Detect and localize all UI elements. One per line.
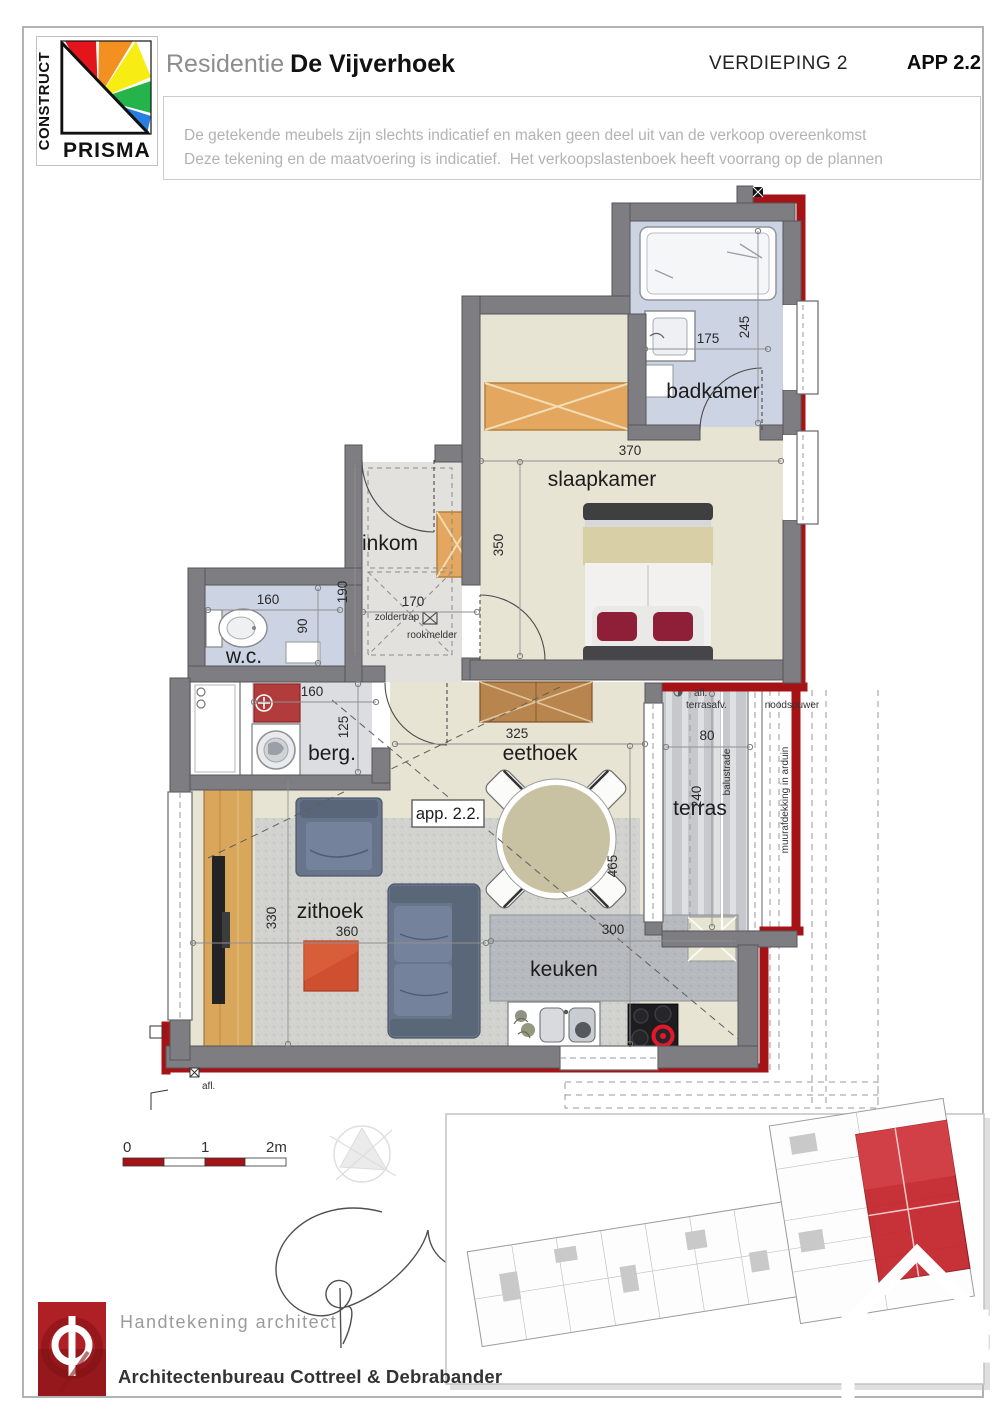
- dim-living-d: 465: [605, 855, 620, 878]
- note-afl-bottom: afl.: [202, 1081, 215, 1092]
- dim-wc-w: 160: [257, 592, 280, 607]
- dim-inkom-w: 170: [402, 594, 425, 609]
- label-wc: w.c.: [225, 645, 262, 668]
- cooktop: [628, 1004, 678, 1050]
- dim-zithoek-w: 360: [336, 924, 359, 939]
- dim-terras-w: 80: [699, 728, 714, 743]
- signature-caption: Handtekening architect: [120, 1312, 337, 1333]
- label-eethoek: eethoek: [503, 742, 578, 765]
- column-marker-icon: [753, 187, 763, 197]
- dim-inkom-d: 190: [335, 581, 350, 604]
- scale-0: 0: [123, 1139, 131, 1156]
- window-badkamer: [783, 301, 818, 394]
- note-terrasafv: terrasafv.: [686, 700, 727, 711]
- label-inkom: inkom: [362, 532, 418, 555]
- wc-shelf: [286, 642, 320, 663]
- window-bottom: [560, 1046, 658, 1070]
- dim-eethoek-w: 325: [506, 726, 529, 741]
- label-slaapkamer: slaapkamer: [548, 468, 657, 491]
- sofa: [388, 884, 480, 1038]
- dim-berg-w: 160: [301, 684, 324, 699]
- dim-slaapkamer-d: 350: [491, 534, 506, 557]
- dim-wc-d: 90: [295, 618, 310, 633]
- note-noodspuwer: noodspuwer: [765, 700, 820, 711]
- dim-badkamer-d: 245: [737, 316, 752, 339]
- floor-plan-svg: badkamer slaapkamer inkom w.c. berg. eet…: [0, 0, 1007, 1425]
- scale-bar: 0 1 2m: [123, 1139, 287, 1166]
- scale-1: 1: [201, 1139, 209, 1156]
- firm-name: Architectenbureau Cottreel & Debrabander: [118, 1366, 502, 1388]
- floorplan-sheet: { "header": { "logo": { "construct": "CO…: [0, 0, 1007, 1425]
- bed: [583, 503, 713, 665]
- scale-2m: 2m: [266, 1139, 287, 1156]
- label-zithoek: zithoek: [297, 900, 364, 923]
- apartment-tag: app. 2.2.: [412, 800, 484, 827]
- dim-badkamer-w: 175: [697, 331, 720, 346]
- window-left: [168, 792, 192, 1020]
- window-slaapkamer: [783, 431, 818, 524]
- note-rookmelder: rookmelder: [407, 630, 458, 641]
- apartment-tag-text: app. 2.2.: [416, 805, 480, 823]
- label-keuken: keuken: [530, 958, 598, 981]
- washing-machine: [252, 724, 300, 776]
- note-zoldertrap: zoldertrap: [375, 612, 420, 623]
- dining-table: [499, 782, 613, 896]
- dim-terras-d: 240: [689, 786, 704, 809]
- label-badkamer: badkamer: [666, 380, 759, 403]
- kitchen-sink: [508, 1002, 600, 1048]
- dim-keuken-w: 300: [602, 922, 625, 937]
- note-afl-terras: afl.: [694, 688, 707, 699]
- architect-logo: [38, 1302, 106, 1396]
- phi-logo-graphic: [38, 1302, 106, 1396]
- dim-slaapkamer-w: 370: [619, 443, 642, 458]
- window-terras-door: [644, 703, 663, 922]
- note-muurafdekking: muurafdekking in arduin: [780, 747, 791, 854]
- label-berg: berg.: [308, 742, 356, 765]
- armchair: [296, 798, 382, 876]
- dim-zithoek-d: 330: [264, 907, 279, 930]
- dim-berg-d: 125: [336, 716, 351, 739]
- compass-rose: [330, 1126, 396, 1182]
- note-balustrade: balustrade: [722, 748, 733, 795]
- overview-panel: [446, 1098, 1007, 1425]
